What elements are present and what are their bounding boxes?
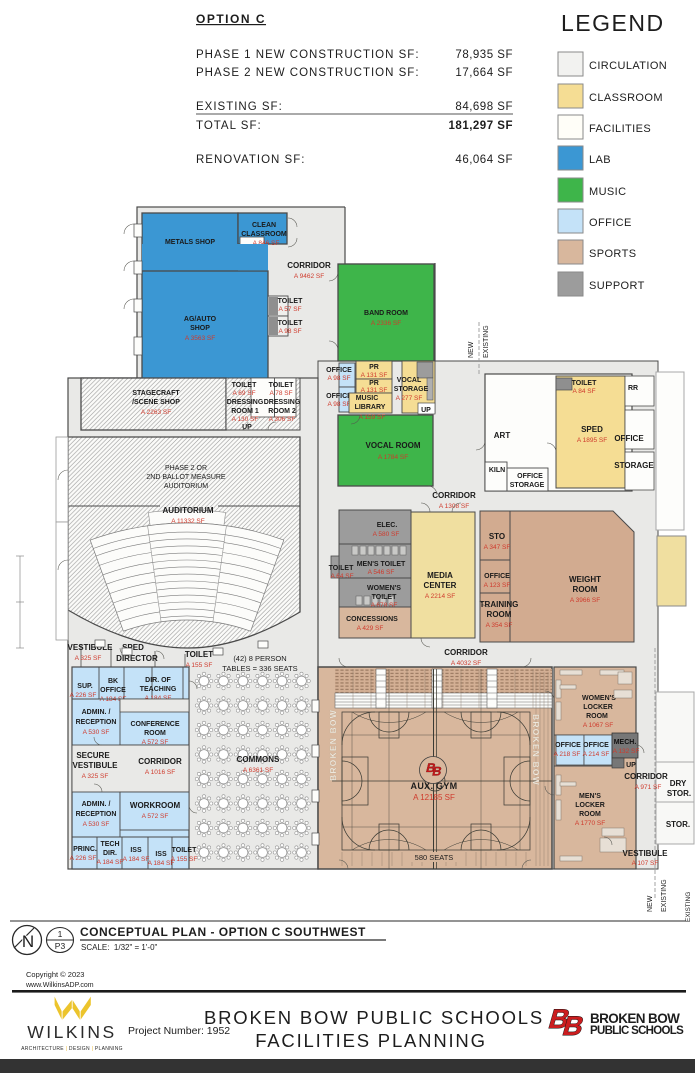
svg-text:SPORTS: SPORTS xyxy=(589,248,636,260)
svg-text:ARCHITECTURE | DESIGN | PLANNI: ARCHITECTURE | DESIGN | PLANNING xyxy=(21,1046,123,1052)
svg-text:ADMIN. /: ADMIN. / xyxy=(82,801,111,808)
svg-text:A 580 SF: A 580 SF xyxy=(373,531,400,538)
svg-text:BK: BK xyxy=(108,678,118,685)
svg-text:KILN: KILN xyxy=(489,467,505,474)
svg-text:PR: PR xyxy=(369,364,379,371)
svg-text:LEGEND: LEGEND xyxy=(561,10,665,36)
svg-text:OFFICE: OFFICE xyxy=(614,434,644,443)
svg-text:/SCENE SHOP: /SCENE SHOP xyxy=(132,399,180,406)
svg-text:STOR.: STOR. xyxy=(666,820,690,829)
svg-text:COMMONS: COMMONS xyxy=(237,755,280,764)
svg-text:OFFICE: OFFICE xyxy=(326,393,352,400)
svg-text:DRESSING: DRESSING xyxy=(227,399,264,406)
svg-text:STORAGE: STORAGE xyxy=(614,461,654,470)
svg-text:A 530 SF: A 530 SF xyxy=(83,821,110,828)
svg-text:ROOM 2: ROOM 2 xyxy=(268,408,296,415)
svg-text:A 429 SF: A 429 SF xyxy=(357,625,384,632)
svg-text:WORKROOM: WORKROOM xyxy=(130,801,181,810)
svg-text:TEACHING: TEACHING xyxy=(140,686,177,693)
svg-text:PHASE 2 NEW CONSTRUCTION SF:: PHASE 2 NEW CONSTRUCTION SF: xyxy=(196,67,420,79)
svg-text:TOTAL SF:: TOTAL SF: xyxy=(196,120,262,132)
svg-text:WOMEN'S: WOMEN'S xyxy=(582,695,616,702)
svg-text:A 325 SF: A 325 SF xyxy=(75,655,102,662)
svg-text:TOILET: TOILET xyxy=(572,380,597,387)
svg-text:ADMIN. /: ADMIN. / xyxy=(82,709,111,716)
svg-text:TOILET: TOILET xyxy=(269,382,294,389)
svg-text:SHOP: SHOP xyxy=(190,325,210,332)
svg-text:VESTIBULE: VESTIBULE xyxy=(623,849,669,858)
svg-text:A 1784 SF: A 1784 SF xyxy=(378,454,408,461)
svg-text:A 226 SF: A 226 SF xyxy=(70,855,97,862)
svg-text:CORRIDOR: CORRIDOR xyxy=(287,261,331,270)
svg-text:ISS: ISS xyxy=(130,847,142,854)
svg-text:PUBLIC SCHOOLS: PUBLIC SCHOOLS xyxy=(590,1025,684,1037)
svg-text:EXISTING: EXISTING xyxy=(483,325,490,358)
svg-text:CORRIDOR: CORRIDOR xyxy=(624,772,668,781)
svg-text:A 277 SF: A 277 SF xyxy=(396,395,423,402)
svg-text:FACILITIES PLANNING: FACILITIES PLANNING xyxy=(255,1030,487,1051)
svg-text:STAGECRAFT: STAGECRAFT xyxy=(132,390,180,397)
svg-text:A 572 SF: A 572 SF xyxy=(142,813,169,820)
svg-text:RR: RR xyxy=(628,385,638,392)
svg-text:A 98 SF: A 98 SF xyxy=(327,375,350,382)
svg-text:www.WilkinsADP.com: www.WilkinsADP.com xyxy=(25,982,94,989)
svg-text:FACILITIES: FACILITIES xyxy=(589,123,651,135)
svg-text:EXISTING: EXISTING xyxy=(661,879,668,912)
svg-text:A 132 SF: A 132 SF xyxy=(613,748,640,755)
svg-text:(42) 8 PERSON: (42) 8 PERSON xyxy=(233,654,286,663)
svg-text:A 130 SF: A 130 SF xyxy=(232,416,259,423)
svg-text:P3: P3 xyxy=(55,941,66,951)
svg-text:MUSIC: MUSIC xyxy=(589,186,626,198)
svg-text:WOMEN'S: WOMEN'S xyxy=(367,585,401,592)
svg-text:AG/AUTO: AG/AUTO xyxy=(184,316,217,323)
svg-text:A 9462 SF: A 9462 SF xyxy=(294,273,324,280)
svg-text:STOR.: STOR. xyxy=(667,789,691,798)
svg-text:A 1016 SF: A 1016 SF xyxy=(145,769,175,776)
svg-text:A 2263 SF: A 2263 SF xyxy=(141,409,171,416)
svg-text:181,297 SF: 181,297 SF xyxy=(449,120,513,132)
svg-text:NEW: NEW xyxy=(468,341,475,358)
svg-text:A 107 SF: A 107 SF xyxy=(632,860,659,867)
svg-text:DIR. OF: DIR. OF xyxy=(145,677,171,684)
svg-text:OFFICE: OFFICE xyxy=(589,217,632,229)
svg-text:A 155 SF: A 155 SF xyxy=(171,856,198,863)
svg-text:WILKINS: WILKINS xyxy=(27,1022,116,1042)
svg-text:A 971 SF: A 971 SF xyxy=(635,784,662,791)
svg-text:EXISTING SF:: EXISTING SF: xyxy=(196,101,283,113)
svg-text:ROOM: ROOM xyxy=(573,585,598,594)
svg-text:PR: PR xyxy=(369,380,379,387)
svg-text:2ND BALLOT MEASURE: 2ND BALLOT MEASURE xyxy=(146,474,226,481)
svg-text:CIRCULATION: CIRCULATION xyxy=(589,60,667,72)
svg-text:A 155 SF: A 155 SF xyxy=(186,662,213,669)
svg-text:DIR.: DIR. xyxy=(103,850,117,857)
svg-text:A 3563 SF: A 3563 SF xyxy=(185,335,215,342)
svg-text:N: N xyxy=(22,932,34,951)
svg-text:TOILET: TOILET xyxy=(372,594,397,601)
svg-text:A 306 SF: A 306 SF xyxy=(269,416,296,423)
svg-text:BROKEN BOW PUBLIC SCHOOLS: BROKEN BOW PUBLIC SCHOOLS xyxy=(204,1007,544,1028)
svg-text:STORAGE: STORAGE xyxy=(394,386,429,393)
svg-text:RENOVATION SF:: RENOVATION SF: xyxy=(196,154,305,166)
svg-text:LAB: LAB xyxy=(589,154,611,166)
svg-text:TOILET: TOILET xyxy=(172,847,197,854)
svg-text:LIBRARY: LIBRARY xyxy=(355,404,386,411)
svg-text:CLEAN: CLEAN xyxy=(252,222,276,229)
svg-text:SPED: SPED xyxy=(581,425,603,434)
svg-text:LOCKER: LOCKER xyxy=(583,704,613,711)
svg-text:CLASSROOM: CLASSROOM xyxy=(589,92,663,104)
svg-text:TOILET: TOILET xyxy=(278,320,303,327)
svg-text:A 2214 SF: A 2214 SF xyxy=(425,593,455,600)
svg-text:BAND ROOM: BAND ROOM xyxy=(364,310,408,317)
svg-text:CLASSROOM: CLASSROOM xyxy=(241,231,287,238)
svg-text:OPTION C: OPTION C xyxy=(196,12,266,26)
svg-text:A 530 SF: A 530 SF xyxy=(83,729,110,736)
svg-text:A 1067 SF: A 1067 SF xyxy=(583,722,613,729)
svg-text:SUP.: SUP. xyxy=(77,683,92,690)
svg-text:78,935 SF: 78,935 SF xyxy=(455,49,513,61)
svg-text:OFFICE: OFFICE xyxy=(100,687,126,694)
svg-text:A 1895 SF: A 1895 SF xyxy=(577,437,607,444)
svg-text:VOCAL ROOM: VOCAL ROOM xyxy=(366,441,421,450)
svg-text:A 12185 SF: A 12185 SF xyxy=(413,793,455,802)
svg-text:A 98 SF: A 98 SF xyxy=(278,328,301,335)
svg-text:PRINC.: PRINC. xyxy=(73,846,97,853)
svg-text:ROOM: ROOM xyxy=(579,811,601,818)
svg-text:A 57 SF: A 57 SF xyxy=(278,306,301,313)
svg-text:MEDIA: MEDIA xyxy=(427,571,453,580)
svg-text:MECH.: MECH. xyxy=(614,739,637,746)
svg-text:ROOM: ROOM xyxy=(144,730,166,737)
svg-text:A 226 SF: A 226 SF xyxy=(70,692,97,699)
svg-text:STORAGE: STORAGE xyxy=(510,482,545,489)
svg-text:BROKEN BOW: BROKEN BOW xyxy=(328,709,338,781)
svg-text:SCALE: 1/32" = 1'-0": SCALE: 1/32" = 1'-0" xyxy=(81,943,158,952)
svg-text:A 78 SF: A 78 SF xyxy=(269,390,292,397)
svg-text:UP: UP xyxy=(421,407,431,414)
svg-text:OFFICE: OFFICE xyxy=(555,742,581,749)
svg-text:A 159 SF: A 159 SF xyxy=(359,414,386,421)
svg-text:ART: ART xyxy=(494,431,511,440)
svg-text:A 123 SF: A 123 SF xyxy=(484,582,511,589)
svg-text:A 218 SF: A 218 SF xyxy=(554,751,581,758)
svg-text:OFFICE: OFFICE xyxy=(517,473,543,480)
svg-text:CONFERENCE: CONFERENCE xyxy=(130,721,179,728)
svg-text:CONCESSIONS: CONCESSIONS xyxy=(346,616,398,623)
svg-text:CORRIDOR: CORRIDOR xyxy=(444,648,488,657)
svg-text:CORRIDOR: CORRIDOR xyxy=(432,491,476,500)
svg-text:DRESSING: DRESSING xyxy=(264,399,301,406)
svg-text:AUDITORIUM: AUDITORIUM xyxy=(163,506,214,515)
svg-text:A 1770 SF: A 1770 SF xyxy=(575,820,605,827)
svg-text:46,064 SF: 46,064 SF xyxy=(455,154,513,166)
svg-text:BROKEN BOW: BROKEN BOW xyxy=(590,1011,680,1026)
svg-text:TRAINING: TRAINING xyxy=(480,600,519,609)
svg-text:A 354 SF: A 354 SF xyxy=(486,622,513,629)
svg-text:A 84 SF: A 84 SF xyxy=(572,388,595,395)
svg-text:AUDITORIUM: AUDITORIUM xyxy=(164,483,208,490)
svg-text:RECEPTION: RECEPTION xyxy=(76,719,117,726)
svg-text:CONCEPTUAL PLAN - OPTION C SOU: CONCEPTUAL PLAN - OPTION C SOUTHWEST xyxy=(80,925,366,939)
svg-text:VOCAL: VOCAL xyxy=(397,377,422,384)
svg-text:SUPPORT: SUPPORT xyxy=(589,280,645,292)
svg-text:A 325 SF: A 325 SF xyxy=(82,773,109,780)
svg-text:VESTIBULE: VESTIBULE xyxy=(68,643,114,652)
svg-text:LOCKER: LOCKER xyxy=(575,802,605,809)
svg-text:A 347 SF: A 347 SF xyxy=(484,544,511,551)
svg-text:DRY: DRY xyxy=(670,779,687,788)
svg-text:A 184 SF: A 184 SF xyxy=(97,859,124,866)
svg-text:17,664 SF: 17,664 SF xyxy=(455,67,513,79)
svg-text:A 131 SF: A 131 SF xyxy=(361,372,388,379)
svg-text:MUSIC: MUSIC xyxy=(356,395,379,402)
svg-text:PHASE 1 NEW CONSTRUCTION SF:: PHASE 1 NEW CONSTRUCTION SF: xyxy=(196,49,420,61)
svg-text:A 214 SF: A 214 SF xyxy=(583,751,610,758)
svg-text:BROKEN BOW: BROKEN BOW xyxy=(531,714,541,786)
svg-text:84,698 SF: 84,698 SF xyxy=(455,101,513,113)
svg-text:SECURE: SECURE xyxy=(76,751,110,760)
svg-text:A 546 SF: A 546 SF xyxy=(368,569,395,576)
svg-text:WEIGHT: WEIGHT xyxy=(569,575,601,584)
svg-text:A 6361 SF: A 6361 SF xyxy=(243,767,273,774)
svg-text:ROOM: ROOM xyxy=(487,610,512,619)
svg-text:A 98 SF: A 98 SF xyxy=(327,401,350,408)
svg-text:CENTER: CENTER xyxy=(424,581,457,590)
svg-text:A 4032 SF: A 4032 SF xyxy=(451,660,481,667)
svg-text:VESTIBULE: VESTIBULE xyxy=(73,761,119,770)
svg-text:A 69 SF: A 69 SF xyxy=(232,390,255,397)
svg-text:Copyright © 2023: Copyright © 2023 xyxy=(26,970,84,979)
svg-text:TOILET: TOILET xyxy=(278,298,303,305)
svg-text:ROOM 1: ROOM 1 xyxy=(231,408,259,415)
svg-text:PHASE 2 OR: PHASE 2 OR xyxy=(165,465,207,472)
svg-text:TOILET: TOILET xyxy=(232,382,257,389)
svg-text:RECEPTION: RECEPTION xyxy=(76,811,117,818)
svg-text:NEW: NEW xyxy=(647,895,654,912)
svg-text:OFFICE: OFFICE xyxy=(583,742,609,749)
svg-text:OFFICE: OFFICE xyxy=(484,573,510,580)
svg-text:A 3966 SF: A 3966 SF xyxy=(570,597,600,604)
svg-text:UP: UP xyxy=(626,762,636,769)
svg-text:OFFICE: OFFICE xyxy=(326,367,352,374)
svg-text:TABLES = 336 SEATS: TABLES = 336 SEATS xyxy=(222,664,297,673)
svg-text:AUX. GYM: AUX. GYM xyxy=(411,781,458,791)
svg-text:ROOM: ROOM xyxy=(586,713,608,720)
svg-text:TOILET: TOILET xyxy=(185,650,213,659)
svg-text:1: 1 xyxy=(58,929,63,939)
svg-text:MEN'S: MEN'S xyxy=(579,793,601,800)
svg-text:A 2336 SF: A 2336 SF xyxy=(371,320,401,327)
svg-text:580 SEATS: 580 SEATS xyxy=(415,853,454,862)
svg-text:MEN'S TOILET: MEN'S TOILET xyxy=(357,561,406,568)
svg-text:STO: STO xyxy=(489,532,505,541)
svg-text:EXISTING: EXISTING xyxy=(685,892,692,922)
svg-text:A 11332 SF: A 11332 SF xyxy=(171,518,205,525)
svg-text:A 184 SF: A 184 SF xyxy=(123,856,150,863)
svg-text:TECH: TECH xyxy=(100,841,119,848)
svg-text:CORRIDOR: CORRIDOR xyxy=(138,757,182,766)
svg-text:TOILET: TOILET xyxy=(329,565,354,572)
svg-text:ISS: ISS xyxy=(155,851,167,858)
svg-text:ELEC.: ELEC. xyxy=(377,522,398,529)
